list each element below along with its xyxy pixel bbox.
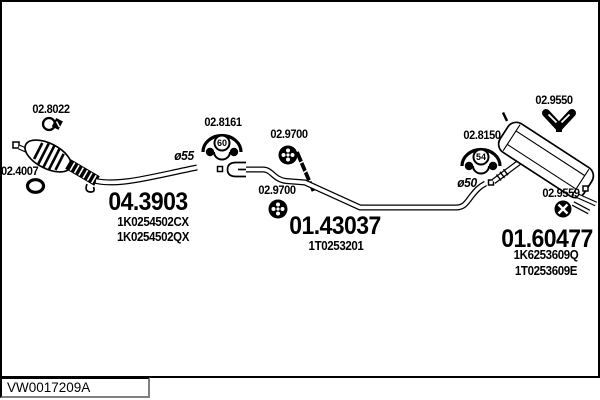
vehicle-code-box: VW0017209A (0, 377, 150, 398)
bracket-hook-drawing (86, 184, 94, 192)
joint-marker (218, 167, 223, 172)
part-number-bracket[interactable]: 02.8161 (204, 116, 241, 129)
part-number-front[interactable]: 04.3903 (108, 189, 187, 215)
sleeve-clamp-drawing (228, 163, 247, 177)
part-number-gasket[interactable]: 02.4007 (1, 165, 38, 178)
part-number-bracket[interactable]: 02.8150 (463, 129, 500, 142)
oe-number: 1T0253609E (515, 265, 577, 278)
joint-marker (489, 180, 494, 185)
part-number-centre[interactable]: 01.43037 (289, 213, 381, 239)
rubber-grommet-icon (269, 200, 288, 219)
oe-number: 1T0253201 (309, 240, 364, 253)
joint-marker (583, 186, 588, 191)
oe-number: 1K6253609Q (514, 249, 579, 262)
bracket-badge: 60 (217, 138, 227, 148)
part-number-grommet[interactable]: 02.9700 (258, 184, 295, 197)
vehicle-code: VW0017209A (7, 380, 90, 395)
rubber-mount-icon (546, 113, 572, 132)
hanger-bracket-icon: 60 (203, 136, 241, 160)
diagram-artwork: 60 54 (0, 0, 600, 400)
bracket-badge: 54 (476, 152, 486, 162)
catalytic-converter-drawing (13, 134, 197, 192)
exhaust-system-diagram: 60 54 (0, 0, 600, 400)
part-number-grommet[interactable]: 02.9700 (270, 128, 307, 141)
pipe-diameter-front: ø55 (174, 149, 194, 163)
oe-number: 1K0254502CX (117, 216, 188, 229)
part-number-clamp[interactable]: 02.8022 (32, 103, 69, 116)
joint-marker (13, 142, 19, 148)
part-number-grommet[interactable]: 02.9559 (542, 187, 579, 200)
pipe-diameter-rear: ø50 (457, 176, 477, 190)
part-number-mount[interactable]: 02.9550 (535, 94, 572, 107)
oe-number: 1K0254502QX (117, 231, 189, 244)
gasket-ring-icon (28, 180, 44, 193)
pipe-clamp-icon (43, 118, 63, 130)
grommet-icon (555, 201, 572, 218)
hanger-bracket-icon: 54 (462, 150, 500, 174)
rubber-grommet-icon (279, 146, 298, 165)
flex-corrugation-drawing (68, 163, 97, 183)
